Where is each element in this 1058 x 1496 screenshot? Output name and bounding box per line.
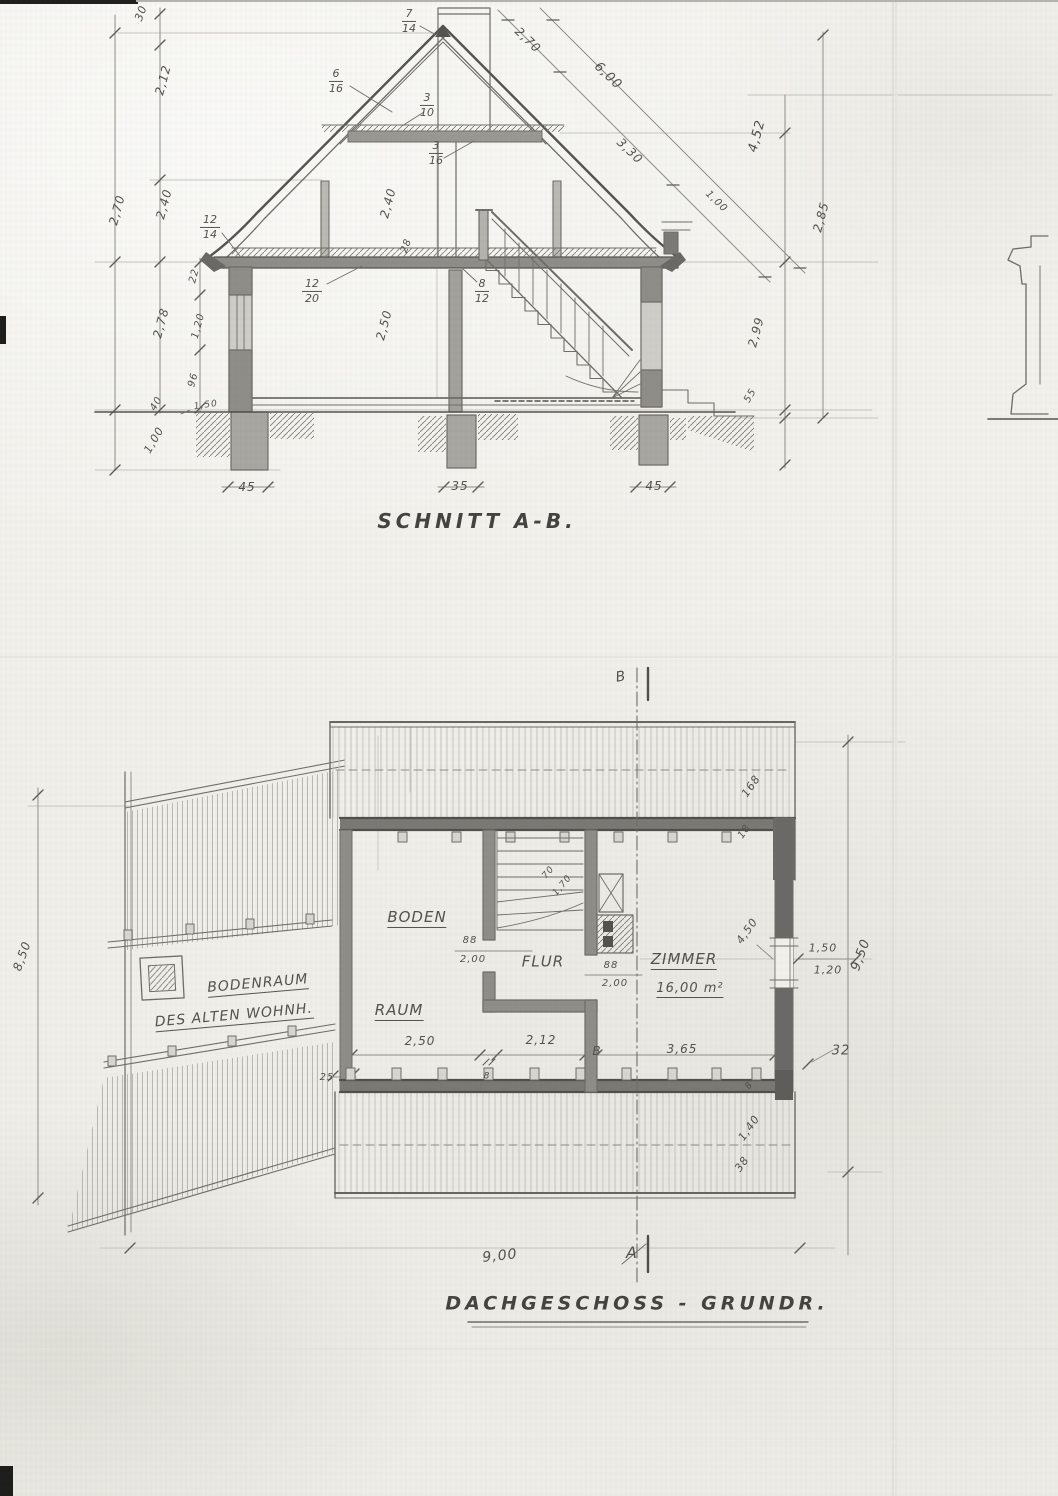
timber-7-14: 714 bbox=[402, 8, 416, 34]
zimmer-area: 16,00 m² bbox=[656, 982, 723, 998]
dim-6-00-roof: 6,00 bbox=[592, 60, 625, 92]
dim-22: 22 bbox=[188, 268, 201, 285]
section-marker-a: A bbox=[626, 1245, 638, 1261]
timber-12-14: 1214 bbox=[200, 214, 220, 240]
dim-38: 38 bbox=[733, 1154, 751, 1173]
door-dim-2-00-a: 2,00 bbox=[460, 955, 486, 965]
dim-32: 32 bbox=[832, 1045, 851, 1058]
dim-2-70-left: 2,70 bbox=[107, 194, 127, 227]
dim-168: 168 bbox=[740, 773, 763, 799]
timber-3-16: 316 bbox=[429, 140, 443, 166]
chain-marker-b: B bbox=[592, 1045, 601, 1057]
dim-2-12-plan: 2,12 bbox=[526, 1034, 557, 1046]
room-label-raum: RAUM bbox=[375, 1003, 424, 1021]
dim-4-50: 4,50 bbox=[734, 916, 759, 946]
room-label-flur: FLUR bbox=[522, 955, 564, 970]
dim-2-40-attic: 2,40 bbox=[378, 187, 398, 220]
dim-55: 55 bbox=[743, 387, 759, 405]
dim-9-00: 9,00 bbox=[482, 1247, 518, 1265]
timber-6-16: 616 bbox=[329, 68, 343, 94]
dim-1-40: 1,40 bbox=[736, 1113, 761, 1143]
old-house-label-2: DES ALTEN WOHNH. bbox=[154, 1002, 313, 1033]
window-dim-1-70: 1,70 bbox=[552, 874, 574, 898]
dim-2-85: 2,85 bbox=[811, 201, 831, 234]
section-title: SCHNITT A-B. bbox=[377, 511, 576, 531]
door-dim-2-00-b: 2,00 bbox=[602, 979, 628, 989]
dim-1-50-ground: 1,50 bbox=[193, 400, 218, 412]
dim-2-50-room: 2,50 bbox=[374, 309, 394, 342]
dim-4-52: 4,52 bbox=[746, 118, 767, 153]
door-dim-88-a: 88 bbox=[463, 936, 478, 946]
dim-1-00-roof: 1,00 bbox=[703, 189, 729, 214]
dim-45-right: 45 bbox=[645, 480, 662, 492]
annotation-layer: SCHNITT A-B.302,122,402,702,78221,209640… bbox=[0, 0, 1058, 1496]
dim-9-50: 9,50 bbox=[849, 937, 872, 972]
dim-35-middle: 35 bbox=[451, 480, 468, 492]
room-label-boden: BODEN bbox=[387, 910, 446, 928]
dim-45-left: 45 bbox=[238, 481, 255, 493]
dim-18: 18 bbox=[737, 823, 754, 841]
dim-40: 40 bbox=[149, 395, 165, 413]
dim-96: 96 bbox=[187, 372, 200, 389]
timber-12-20: 1220 bbox=[302, 278, 322, 304]
timber-8-12: 812 bbox=[475, 278, 489, 304]
dim-2-50-plan: 2,50 bbox=[405, 1035, 436, 1047]
plan-title: DACHGESCHOSS - GRUNDR. bbox=[445, 1295, 828, 1314]
window-dim-70: 70 bbox=[541, 865, 557, 881]
section-marker-b: B bbox=[615, 669, 628, 685]
dim-2-78: 2,78 bbox=[151, 307, 171, 340]
window-dim-1-50: 1,50 bbox=[809, 943, 838, 954]
dim-25: 25 bbox=[320, 1073, 335, 1083]
dim-1-20: 1,20 bbox=[191, 312, 207, 340]
dim-28-beam: 28 bbox=[400, 237, 414, 254]
dim-30: 30 bbox=[133, 4, 149, 23]
dim-8-wall: 8 bbox=[744, 1081, 755, 1092]
door-dim-88-b: 88 bbox=[604, 961, 619, 971]
dim-2-12: 2,12 bbox=[153, 64, 173, 97]
blueprint-page: SCHNITT A-B.302,122,402,702,78221,209640… bbox=[0, 0, 1058, 1496]
room-label-zimmer: ZIMMER bbox=[651, 952, 717, 970]
dim-2-40-left: 2,40 bbox=[154, 188, 174, 221]
timber-3-10: 310 bbox=[420, 92, 434, 118]
dim-2-99: 2,99 bbox=[746, 316, 766, 349]
window-dim-1-20: 1,20 bbox=[814, 965, 843, 976]
dim-8-chain: 8 bbox=[484, 1073, 491, 1082]
dim-3-65: 3,65 bbox=[667, 1043, 698, 1055]
old-house-label-1: BODENRAUM bbox=[207, 972, 309, 998]
dim-2-70-roof: 2,70 bbox=[513, 25, 543, 55]
dim-8-50: 8,50 bbox=[11, 940, 33, 973]
dim-1-00-foundation: 1,00 bbox=[142, 425, 166, 455]
dim-3-30-roof: 3,30 bbox=[615, 136, 645, 166]
